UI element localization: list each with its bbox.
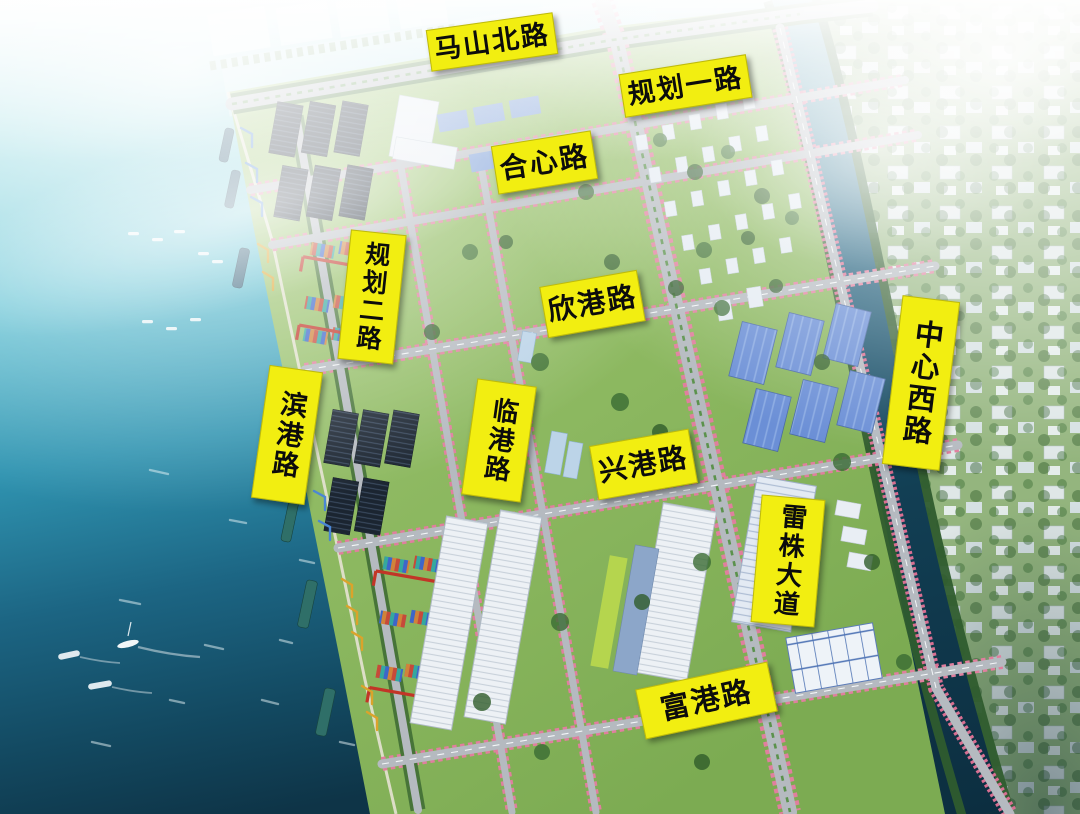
- aerial-map: 马山北路 规划一路 合心路 规划二路 欣港路 中心西路 滨港路 临港路 兴港路 …: [0, 0, 1080, 814]
- road-label-leizhu-avenue: 雷株大道: [751, 494, 826, 627]
